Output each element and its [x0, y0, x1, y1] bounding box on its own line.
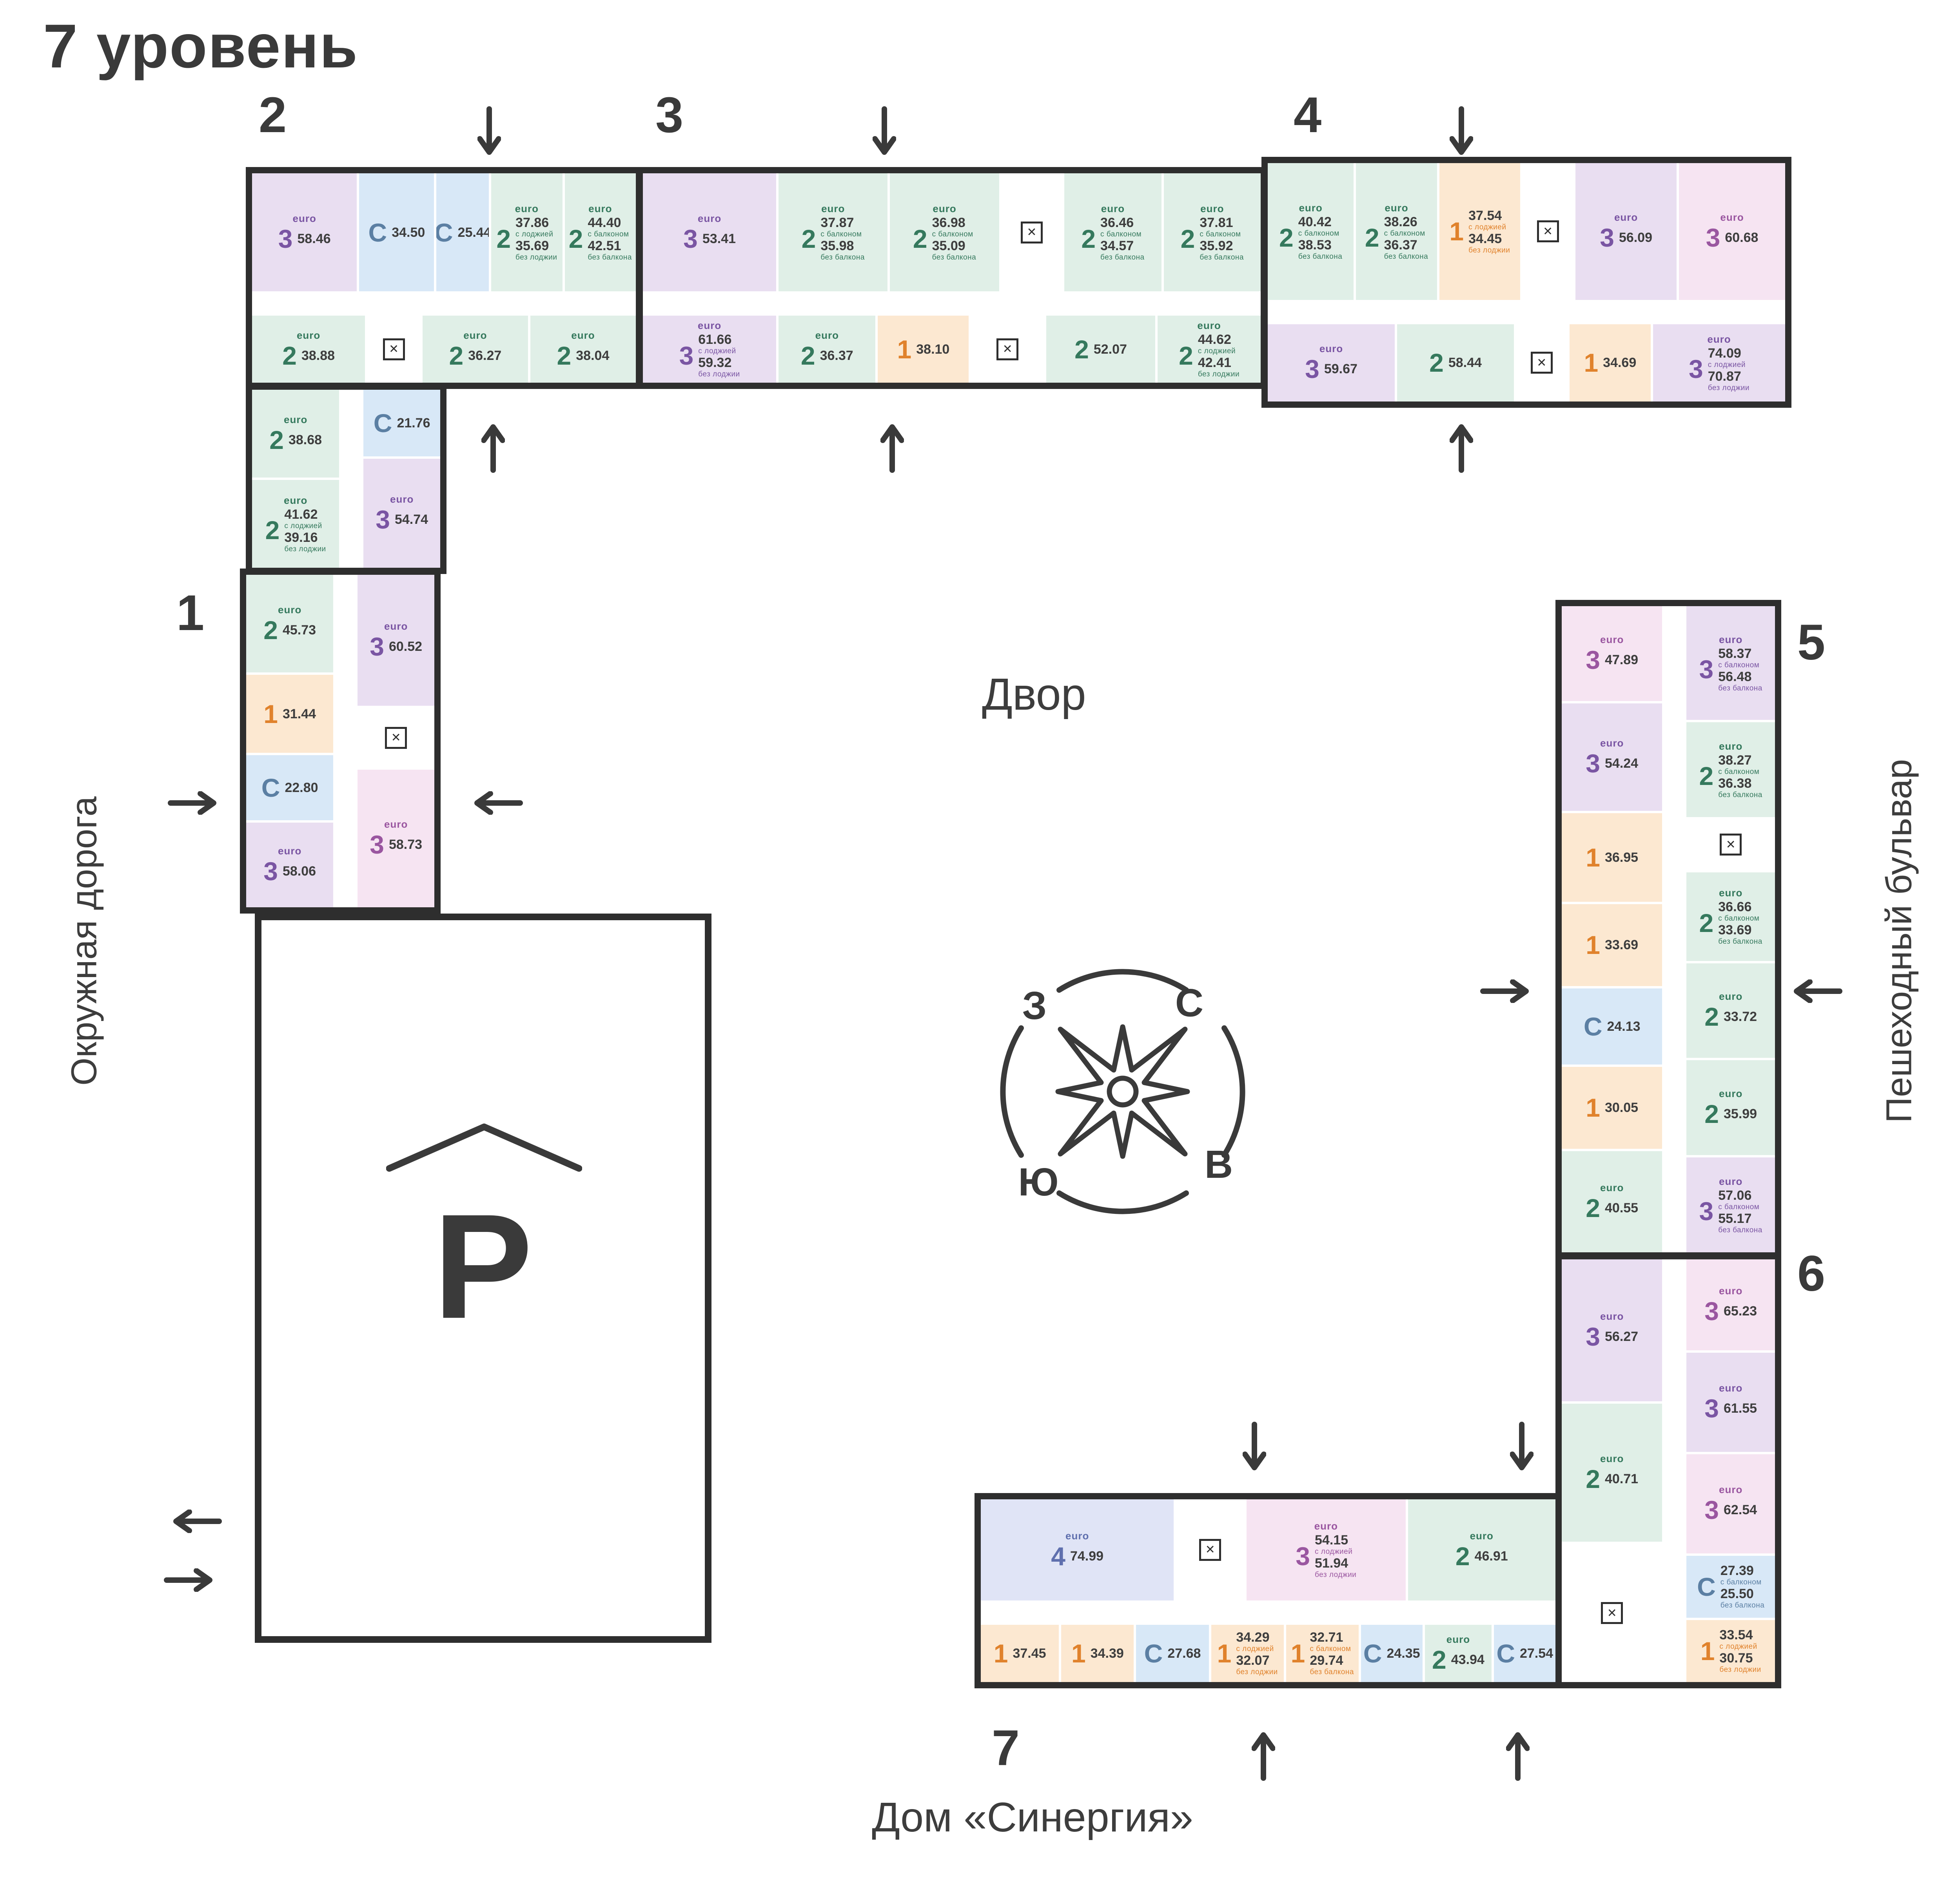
elevator-icon: ✕ [1531, 352, 1553, 374]
apartment-label: euro238.68 [269, 414, 322, 453]
apartment-cell[interactable]: euro361.55 [1686, 1353, 1775, 1452]
apartment-cell[interactable]: euro474.99 [981, 1499, 1174, 1600]
apartment-cell[interactable]: euro238.88 [252, 316, 365, 383]
apartment-area: 38.53 [1298, 238, 1332, 252]
apartment-area: 33.69 [1605, 938, 1638, 952]
apartment-area: 35.92 [1200, 239, 1233, 253]
apartment-label: euro237.86с лоджией35.69без лоджии [496, 203, 557, 261]
apartment-cell[interactable]: euro245.73 [246, 575, 333, 672]
elevator-icon: ✕ [383, 338, 405, 360]
apartment-label: euro236.37 [801, 330, 853, 369]
apartment-cell[interactable]: euro360.52 [358, 575, 434, 706]
apartment-cell[interactable]: euro246.91 [1408, 1499, 1555, 1600]
apartment-label: euro374.09с лоджией70.87без лоджии [1689, 334, 1749, 392]
apartment-area: 74.09 [1708, 347, 1741, 360]
apartment-label: euro238.04 [557, 330, 610, 369]
apartment-cell[interactable]: C27.54 [1494, 1625, 1555, 1682]
apartment-type: 1 [1217, 1640, 1232, 1666]
entrance-arrow-up-icon [481, 414, 505, 473]
stair-core: ✕ [1523, 163, 1573, 300]
entrance-arrow-left-icon [1784, 979, 1843, 1003]
apartment-area-variant: без балкона [1720, 1602, 1765, 1609]
apartment-type: 2 [1586, 1466, 1600, 1492]
apartment-area: 58.44 [1448, 356, 1482, 369]
apartment-area-variant: без балкона [588, 254, 632, 261]
entrance-arrow-up-icon [880, 414, 904, 473]
apartment-type: 1 [1449, 218, 1464, 244]
apartment-type: 2 [1704, 1004, 1719, 1030]
apartment-type: 3 [1586, 647, 1600, 673]
apartment-cell[interactable]: 134.29с лоджией32.07без лоджии [1211, 1625, 1284, 1682]
apartment-type: 2 [1704, 1101, 1719, 1127]
apartment-area: 27.54 [1520, 1647, 1553, 1660]
apartment-type: 2 [1699, 763, 1714, 789]
apartment-area: 56.27 [1605, 1330, 1638, 1343]
apartment-area: 57.06 [1718, 1189, 1751, 1202]
apartment-type: 3 [370, 832, 384, 857]
corridor [252, 291, 636, 316]
apartment-type: 2 [1699, 910, 1714, 936]
apartment-cell[interactable]: euro236.46с балконом34.57без балкона [1064, 173, 1161, 291]
apartment-area: 36.27 [468, 349, 501, 362]
apartment-area: 47.89 [1605, 653, 1638, 667]
apartment-label: euro356.09 [1600, 212, 1652, 251]
apartment-cell[interactable]: euro358.46 [252, 173, 357, 291]
apartment-label: euro354.24 [1586, 738, 1638, 776]
apartment-area-variant: без лоджии [1708, 384, 1749, 392]
courtyard-label: Двор [982, 669, 1086, 720]
apartment-area: 58.06 [283, 865, 316, 878]
apartment-label: euro244.40с балконом42.51без балкона [569, 203, 632, 261]
apartment-type: 1 [1071, 1640, 1086, 1666]
apartment-type: 2 [557, 343, 572, 369]
apartment-type: 2 [269, 427, 284, 453]
elevator-icon: ✕ [1537, 220, 1559, 242]
apartment-cell[interactable]: euro238.27с балконом36.38без балкона [1686, 722, 1775, 817]
apartment-cell[interactable]: euro241.62с лоджией39.16без лоджии [252, 480, 339, 568]
apartment-area-variant: с лоджией [515, 231, 553, 238]
apartment-label: euro357.06с балконом55.17без балкона [1699, 1176, 1762, 1234]
apartment-type: 2 [282, 343, 297, 369]
apartment-cell[interactable]: euro240.42с балконом38.53без балкона [1268, 163, 1354, 300]
apartment-label: 252.07 [1074, 336, 1127, 362]
apartment-area: 62.54 [1724, 1503, 1757, 1517]
apartment-cell[interactable]: euro236.98с балконом35.09без балкона [890, 173, 999, 291]
apartment-type: 2 [569, 226, 583, 252]
apartment-area: 36.98 [932, 216, 965, 229]
road-arrow-left-icon [163, 1510, 222, 1533]
apartment-label: euro356.27 [1586, 1311, 1638, 1350]
apartment-type: 3 [1586, 1324, 1600, 1350]
elevator-icon: ✕ [996, 338, 1018, 360]
apartment-area: 60.52 [389, 640, 422, 653]
apartment-area: 36.95 [1605, 851, 1638, 864]
entrance-arrow-right-icon [167, 791, 226, 815]
apartment-area: 44.40 [588, 216, 621, 229]
apartment-label: euro347.89 [1586, 634, 1638, 673]
apartment-cell[interactable]: euro354.24 [1562, 703, 1662, 811]
apartment-label: euro358.46 [278, 213, 331, 252]
apartment-area: 65.23 [1724, 1304, 1757, 1318]
apartment-label: 137.45 [994, 1640, 1046, 1666]
apartment-area: 36.37 [820, 349, 853, 362]
apartment-cell[interactable]: euro233.72 [1686, 963, 1775, 1058]
apartment-cell[interactable]: 133.54с лоджией30.75без лоджии [1686, 1620, 1775, 1682]
apartment-cell[interactable]: euro237.81с балконом35.92без балкона [1164, 173, 1261, 291]
entrance-arrow-up-icon [1450, 414, 1473, 473]
apartment-label: euro358.73 [370, 819, 422, 857]
apartment-area: 55.17 [1718, 1212, 1751, 1225]
apartment-area: 34.29 [1236, 1631, 1269, 1644]
apartment-area-variant: без лоджии [284, 545, 326, 553]
corridor [981, 1600, 1555, 1625]
apartment-type: 2 [1081, 226, 1096, 252]
section-label-4: 4 [1294, 86, 1321, 144]
apartment-area: 54.24 [1605, 757, 1638, 770]
apartment-area-variant: с балконом [1298, 230, 1339, 237]
apartment-type: 2 [1279, 225, 1294, 251]
apartment-type: C [1496, 1640, 1515, 1666]
apartment-cell[interactable]: euro244.40с балконом42.51без балкона [565, 173, 636, 291]
apartment-type: C [1584, 1014, 1602, 1039]
apartment-type: 3 [1296, 1543, 1310, 1569]
apartment-area: 56.48 [1718, 670, 1751, 683]
apartment-area: 59.32 [698, 356, 731, 369]
building-section-6: euro356.27euro240.71✕ euro365.23euro361.… [1555, 1253, 1781, 1688]
apartment-cell[interactable]: 133.69 [1562, 904, 1662, 986]
apartment-area: 40.42 [1298, 215, 1332, 229]
apartment-area: 36.66 [1718, 900, 1751, 914]
apartment-area: 45.73 [283, 623, 316, 637]
apartment-cell[interactable]: euro237.87с балконом35.98без балкона [779, 173, 887, 291]
apartment-area: 43.94 [1451, 1653, 1485, 1666]
apartment-cell[interactable]: euro354.74 [363, 459, 440, 568]
apartment-type: 3 [679, 343, 694, 369]
apartment-area: 30.75 [1719, 1651, 1753, 1665]
apartment-type: 1 [1700, 1638, 1715, 1664]
apartment-area: 25.44 [458, 226, 489, 239]
apartment-type: 2 [263, 617, 278, 643]
apartment-cell[interactable]: 134.39 [1061, 1625, 1134, 1682]
apartment-cell[interactable]: euro238.26с балконом36.37без балкона [1356, 163, 1437, 300]
apartment-label: 134.39 [1071, 1640, 1124, 1666]
apartment-cell[interactable]: euro236.27 [423, 316, 528, 383]
apartment-cell[interactable]: euro244.62с лоджией42.41без лоджии [1158, 316, 1261, 383]
apartment-type: C [1144, 1640, 1163, 1666]
apartment-cell[interactable]: euro356.09 [1575, 163, 1677, 300]
apartment-label: euro359.67 [1305, 343, 1357, 382]
apartment-area-variant: без балкона [1718, 938, 1762, 945]
apartment-area-variant: с лоджией [1198, 347, 1236, 355]
apartment-area: 34.57 [1100, 239, 1134, 253]
apartment-area-variant: с балконом [1384, 230, 1425, 237]
apartment-label: euro360.68 [1706, 212, 1759, 251]
compass-north-label: С [1175, 981, 1203, 1025]
apartment-type: 3 [1704, 1395, 1719, 1421]
apartment-area: 42.51 [588, 239, 621, 253]
apartment-cell[interactable]: euro357.06с балконом55.17без балкона [1686, 1157, 1775, 1252]
apartment-cell[interactable]: euro235.99 [1686, 1060, 1775, 1155]
apartment-label: euro240.42с балконом38.53без балкона [1279, 203, 1342, 260]
elevator-icon: ✕ [1720, 834, 1742, 856]
building-section-2: euro358.46C34.50C25.44euro237.86с лоджие… [246, 167, 642, 389]
stair-core: ✕ [971, 316, 1044, 383]
apartment-type: 1 [897, 336, 912, 362]
apartment-area: 37.87 [820, 216, 854, 229]
apartment-type: 2 [1074, 336, 1089, 362]
apartment-cell[interactable]: 132.71с балконом29.74без балкона [1286, 1625, 1359, 1682]
apartment-label: 138.10 [897, 336, 950, 362]
apartment-label: euro362.54 [1704, 1484, 1757, 1523]
corridor [1662, 606, 1686, 1252]
apartment-cell[interactable]: 134.69 [1570, 324, 1651, 401]
apartment-cell[interactable]: 137.45 [981, 1625, 1059, 1682]
parking-symbol: P [405, 1192, 561, 1341]
apartment-label: 132.71с балконом29.74без балкона [1291, 1631, 1354, 1676]
section-label-2: 2 [259, 86, 287, 144]
apartment-area: 52.07 [1094, 343, 1127, 356]
apartment-area: 37.45 [1013, 1647, 1046, 1660]
corridor [1268, 300, 1785, 324]
apartment-area-variant: без лоджии [1719, 1666, 1761, 1673]
apartment-area: 58.37 [1718, 647, 1751, 660]
apartment-cell[interactable]: euro358.37с балконом56.48без балкона [1686, 606, 1775, 720]
apartment-cell[interactable]: euro238.68 [252, 390, 339, 478]
apartment-cell[interactable]: C21.76 [363, 390, 440, 456]
apartment-cell[interactable]: euro238.04 [530, 316, 636, 383]
apartment-cell[interactable]: euro359.67 [1268, 324, 1395, 401]
building-section-7: euro474.99✕euro354.15с лоджией51.94без л… [975, 1493, 1562, 1688]
entrance-arrow-right-icon [1480, 979, 1539, 1003]
apartment-type: 1 [1584, 350, 1598, 376]
apartment-area-variant: с лоджией [1236, 1645, 1274, 1653]
apartment-area: 38.68 [289, 433, 322, 447]
apartment-cell[interactable]: 131.44 [246, 675, 333, 753]
apartment-area: 32.71 [1310, 1631, 1343, 1644]
apartment-area: 42.41 [1198, 356, 1231, 369]
apartment-area: 61.66 [698, 333, 731, 346]
entrance-arrow-down-icon [873, 106, 896, 165]
apartment-area: 38.27 [1718, 754, 1751, 767]
corridor [1662, 1259, 1686, 1682]
apartment-area-variant: с лоджией [698, 347, 736, 355]
corridor [333, 575, 358, 907]
apartment-area-variant: без балкона [1298, 253, 1343, 260]
apartment-type: 2 [1586, 1195, 1600, 1221]
apartment-cell[interactable]: C24.13 [1562, 988, 1662, 1064]
apartment-area: 70.87 [1708, 370, 1741, 383]
apartment-type: 3 [1704, 1298, 1719, 1324]
apartment-cell[interactable]: C27.68 [1136, 1625, 1209, 1682]
apartment-area: 33.54 [1719, 1628, 1753, 1642]
apartment-label: euro235.99 [1704, 1088, 1757, 1127]
apartment-area: 34.50 [392, 226, 425, 239]
section-label-1: 1 [176, 584, 204, 642]
apartment-area: 27.68 [1167, 1647, 1201, 1660]
apartment-cell[interactable]: C27.39с балконом25.50без балкона [1686, 1556, 1775, 1618]
entrance-arrow-down-icon [1243, 1421, 1266, 1480]
apartment-label: euro365.23 [1704, 1286, 1757, 1324]
apartment-label: euro474.99 [1051, 1531, 1103, 1569]
apartment-area: 38.88 [301, 349, 335, 362]
apartment-cell[interactable]: C24.35 [1361, 1625, 1423, 1682]
apartment-type: 2 [265, 517, 280, 543]
apartment-area: 34.69 [1603, 356, 1636, 369]
building-section-3: euro353.41euro237.87с балконом35.98без б… [637, 167, 1267, 389]
apartment-cell[interactable]: euro353.41 [643, 173, 776, 291]
apartment-area-variant: без лоджии [1468, 247, 1510, 254]
apartment-type: 3 [683, 226, 698, 252]
apartment-type: 3 [1600, 225, 1614, 251]
apartment-area: 59.67 [1324, 362, 1357, 376]
elevator-icon: ✕ [1601, 1602, 1623, 1624]
apartment-cell[interactable]: euro361.66с лоджией59.32без лоджии [643, 316, 776, 383]
apartment-area-variant: без балкона [1310, 1668, 1354, 1676]
apartment-area-variant: с лоджией [1719, 1643, 1757, 1650]
apartment-area: 33.69 [1718, 923, 1751, 937]
apartment-label: C27.39с балконом25.50без балкона [1697, 1564, 1764, 1609]
apartment-cell[interactable]: euro240.55 [1562, 1151, 1662, 1252]
stair-core: ✕ [1516, 324, 1567, 401]
apartment-area-variant: с балконом [1720, 1579, 1762, 1586]
entrance-arrow-left-icon [465, 791, 523, 815]
apartment-cell[interactable]: euro360.68 [1679, 163, 1785, 300]
apartment-cell[interactable]: 130.05 [1562, 1067, 1662, 1149]
apartment-cell[interactable]: euro347.89 [1562, 606, 1662, 701]
stair-core: ✕ [1002, 173, 1062, 291]
apartment-cell[interactable]: 137.54с лоджией34.45без лоджии [1439, 163, 1520, 300]
apartment-type: 1 [263, 701, 278, 727]
apartment-area: 34.45 [1468, 232, 1502, 245]
apartment-cell[interactable]: euro237.86с лоджией35.69без лоджии [491, 173, 562, 291]
apartment-area: 74.99 [1070, 1550, 1103, 1563]
apartment-area: 44.62 [1198, 333, 1231, 346]
apartment-cell[interactable]: C25.44 [436, 173, 489, 291]
apartment-cell[interactable]: euro358.73 [358, 770, 434, 907]
apartment-label: euro243.94 [1432, 1634, 1485, 1673]
apartment-area: 35.99 [1724, 1107, 1757, 1121]
apartment-label: C22.80 [261, 775, 318, 801]
apartment-type: 2 [1365, 225, 1379, 251]
apartment-area: 37.86 [515, 216, 549, 229]
apartment-label: euro245.73 [263, 605, 316, 643]
apartment-area-variant: без лоджии [698, 371, 740, 378]
entrance-arrow-up-icon [1252, 1722, 1275, 1781]
apartment-area-variant: с балконом [820, 231, 862, 238]
section-label-5: 5 [1797, 614, 1825, 671]
apartment-label: euro246.91 [1455, 1531, 1508, 1569]
apartment-type: 2 [1181, 226, 1195, 252]
apartment-label: C24.35 [1363, 1640, 1420, 1666]
apartment-area-variant: без балкона [820, 254, 865, 261]
apartment-label: euro354.74 [376, 494, 428, 532]
apartment-area-variant: без балкона [1200, 254, 1244, 261]
apartment-cell[interactable]: 138.10 [878, 316, 969, 383]
apartment-area: 34.39 [1091, 1647, 1124, 1660]
apartment-type: 3 [1305, 356, 1319, 382]
apartment-cell[interactable]: euro243.94 [1425, 1625, 1492, 1682]
apartment-cell[interactable]: euro362.54 [1686, 1454, 1775, 1553]
building-section-2-leg: euro238.68euro241.62с лоджией39.16без ло… [246, 383, 446, 574]
apartment-cell[interactable]: 252.07 [1046, 316, 1155, 383]
apartment-type: 2 [1455, 1543, 1470, 1569]
apartment-type: 2 [801, 343, 815, 369]
apartment-label: euro361.55 [1704, 1383, 1757, 1421]
house-name-label: Дом «Синергия» [758, 1794, 1307, 1841]
section-label-7: 7 [992, 1719, 1020, 1777]
apartment-cell[interactable]: C34.50 [359, 173, 434, 291]
page-title: 7 уровень [43, 11, 358, 82]
apartment-label: C34.50 [368, 220, 425, 245]
apartment-cell[interactable]: euro374.09с лоджией70.87без лоджии [1653, 324, 1785, 401]
apartment-label: euro238.26с балконом36.37без балкона [1365, 203, 1428, 260]
apartment-area-variant: без лоджии [1198, 371, 1240, 378]
apartment-cell[interactable]: 136.95 [1562, 813, 1662, 902]
apartment-area: 58.46 [298, 232, 331, 245]
apartment-area-variant: с балконом [1718, 768, 1759, 776]
apartment-cell[interactable]: euro240.71 [1562, 1404, 1662, 1542]
apartment-area: 35.09 [932, 239, 965, 253]
apartment-label: euro236.27 [449, 330, 501, 369]
elevator-icon: ✕ [1199, 1539, 1221, 1561]
compass-south-label: Ю [1018, 1160, 1058, 1204]
apartment-type: C [1697, 1574, 1716, 1600]
apartment-type: C [436, 220, 453, 245]
apartment-label: 130.05 [1586, 1095, 1638, 1121]
apartment-type: 2 [1429, 350, 1444, 376]
stair-core: ✕ [367, 316, 420, 383]
apartment-cell[interactable]: euro236.66с балконом33.69без балкона [1686, 872, 1775, 961]
apartment-cell[interactable]: euro236.37 [779, 316, 875, 383]
apartment-type: C [368, 220, 387, 245]
apartment-label: euro241.62с лоджией39.16без лоджии [265, 495, 326, 553]
apartment-area-variant: с лоджией [284, 522, 322, 530]
apartment-area-variant: без балкона [1384, 253, 1428, 260]
apartment-type: C [1363, 1640, 1382, 1666]
apartment-area: 58.73 [389, 838, 422, 851]
apartment-area: 32.07 [1236, 1654, 1269, 1667]
apartment-area: 27.39 [1720, 1564, 1754, 1577]
apartment-cell[interactable]: euro365.23 [1686, 1259, 1775, 1350]
apartment-label: euro238.27с балконом36.38без балкона [1699, 741, 1762, 799]
apartment-label: euro236.46с балконом34.57без балкона [1081, 203, 1144, 261]
apartment-cell[interactable]: euro354.15с лоджией51.94без лоджии [1247, 1499, 1405, 1600]
apartment-label: euro360.52 [370, 621, 422, 659]
apartment-cell[interactable]: euro356.27 [1562, 1259, 1662, 1401]
apartment-cell[interactable]: 258.44 [1397, 324, 1514, 401]
apartment-area: 38.04 [576, 349, 609, 362]
apartment-label: euro236.66с балконом33.69без балкона [1699, 888, 1762, 945]
apartment-type: 2 [496, 226, 511, 252]
apartment-type: 3 [263, 858, 278, 884]
apartment-area-variant: без лоджии [1236, 1668, 1278, 1676]
apartment-cell[interactable]: C22.80 [246, 755, 333, 820]
apartment-area-variant: с балконом [932, 231, 973, 238]
apartment-area: 36.37 [1384, 238, 1417, 252]
apartment-area-variant: с балконом [1310, 1645, 1351, 1653]
apartment-cell[interactable]: euro358.06 [246, 823, 333, 907]
apartment-type: 3 [1699, 656, 1714, 682]
apartment-area-variant: с балконом [1100, 231, 1142, 238]
corridor [643, 291, 1261, 316]
apartment-area: 33.72 [1724, 1010, 1757, 1023]
apartment-label: 136.95 [1586, 845, 1638, 870]
section-label-3: 3 [655, 86, 683, 144]
compass-rose-icon: С З Ю В [974, 943, 1272, 1241]
apartment-label: euro358.37с балконом56.48без балкона [1699, 634, 1762, 692]
apartment-type: 2 [449, 343, 463, 369]
apartment-label: 137.54с лоджией34.45без лоджии [1449, 209, 1510, 254]
